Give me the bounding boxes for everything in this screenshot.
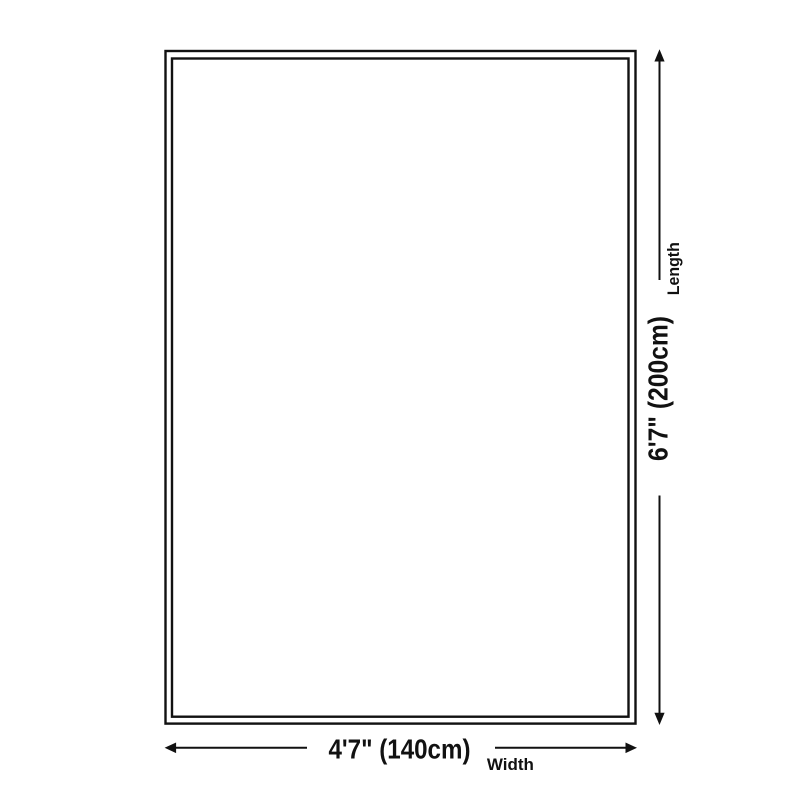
svg-text:4'7" (140cm): 4'7" (140cm) [329, 734, 471, 765]
svg-text:Width: Width [487, 755, 534, 774]
svg-text:6'7" (200cm): 6'7" (200cm) [643, 316, 674, 461]
svg-text:Length: Length [664, 242, 683, 295]
